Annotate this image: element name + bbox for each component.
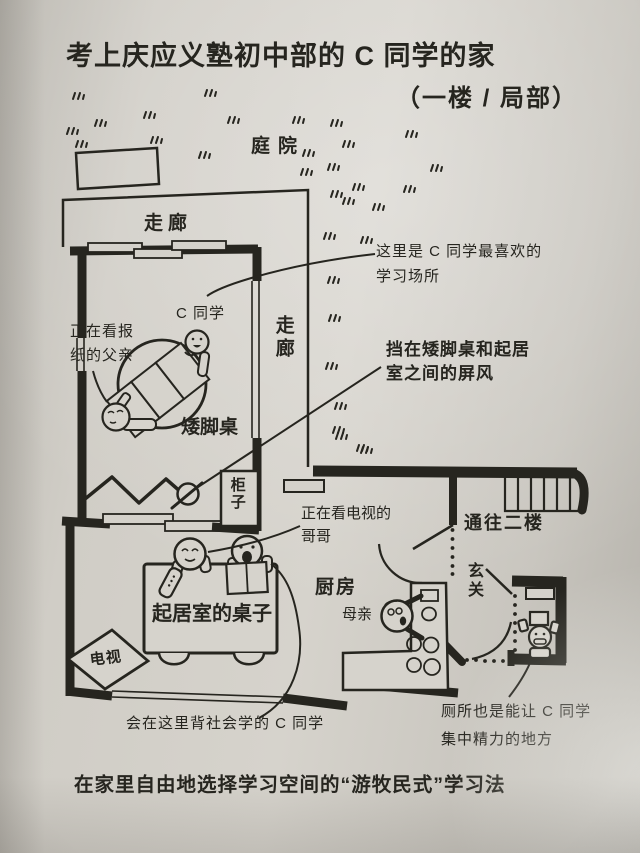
label-student: C 同学 — [176, 305, 225, 324]
page-caption: 在家里自由地选择学习空间的“游牧民式”学习法 — [74, 773, 506, 797]
table-leg-right — [234, 653, 264, 664]
label-cabinet: 柜子 — [227, 477, 246, 511]
annotation-favorite-spot-line1: 这里是 C 同学最喜欢的 — [376, 243, 542, 262]
table-leg-left — [159, 653, 189, 664]
page-title: 考上庆应义塾初中部的 C 同学的家 — [66, 40, 496, 74]
book-page-photo: 考上庆应义塾初中部的 C 同学的家 （一楼 / 局部） 庭院 走廊 走廊 这里是… — [0, 0, 640, 853]
annotation-father-line2: 纸的父亲 — [70, 347, 134, 366]
label-low-table: 矮脚桌 — [181, 416, 238, 440]
student-figure-living-table — [226, 536, 272, 594]
annotation-toilet-line1: 厕所也是能让 C 同学 — [441, 703, 591, 722]
stairs — [505, 477, 583, 511]
toilet-room-walls — [486, 569, 566, 666]
label-kitchen: 厨房 — [315, 576, 357, 600]
annotation-screen-line2: 室之间的屏风 — [386, 363, 494, 384]
label-tv: 电视 — [89, 648, 123, 671]
label-garden: 庭院 — [251, 135, 305, 159]
garden-planter — [76, 148, 159, 189]
annotation-father-line1: 正在看报 — [70, 323, 134, 342]
kitchen-counter — [343, 583, 448, 690]
annotation-social-studies: 会在这里背社会学的 C 同学 — [126, 715, 324, 734]
walking-path-dots — [451, 528, 517, 663]
label-to-second-floor: 通往二楼 — [464, 512, 544, 535]
annotation-favorite-spot-line2: 学习场所 — [376, 268, 440, 287]
annotation-toilet-line2: 集中精力的地方 — [441, 731, 553, 750]
annotation-brother-line2: 哥哥 — [301, 528, 331, 547]
label-mother: 母亲 — [342, 606, 372, 625]
toilet-figure — [518, 612, 560, 661]
label-entrance: 玄关 — [463, 562, 483, 600]
label-corridor-top: 走廊 — [144, 212, 192, 236]
label-living-table: 起居室的桌子 — [152, 602, 272, 627]
page-subtitle: （一楼 / 局部） — [396, 84, 578, 114]
label-corridor-side: 走廊 — [271, 315, 295, 361]
folding-screen — [85, 477, 202, 508]
annotation-brother-line1: 正在看电视的 — [301, 505, 391, 524]
annotation-screen-line1: 挡在矮脚桌和起居 — [386, 339, 530, 360]
